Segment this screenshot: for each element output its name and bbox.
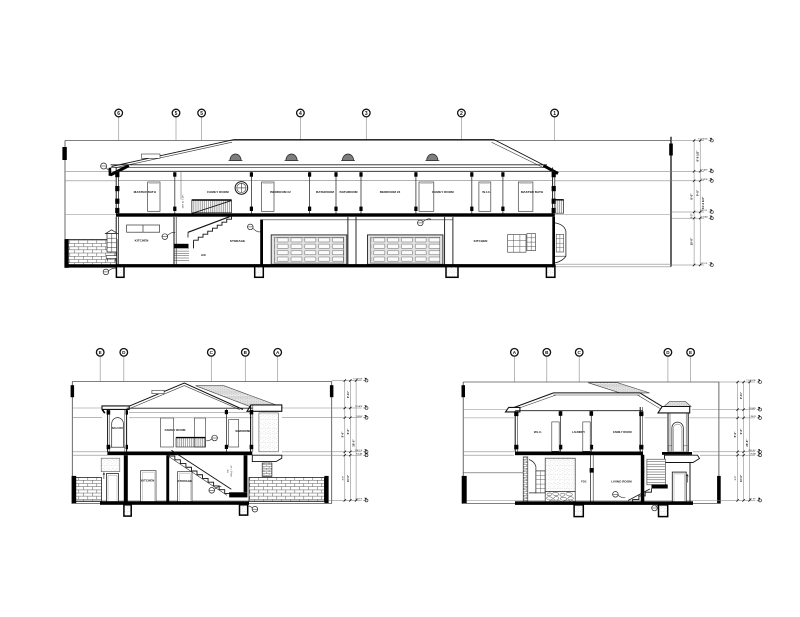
svg-text:MASTER BATH: MASTER BATH xyxy=(521,190,544,194)
svg-text:9'-0": 9'-0" xyxy=(739,428,743,435)
svg-text:FAMILY ROOM: FAMILY ROOM xyxy=(432,190,454,194)
svg-text:BEDROOM #3: BEDROOM #3 xyxy=(380,190,401,194)
svg-text:A/C: A/C xyxy=(201,253,207,257)
svg-text:LIVING ROOM: LIVING ROOM xyxy=(611,480,632,484)
svg-text:W.I.C.: W.I.C. xyxy=(482,190,491,194)
svg-text:KITCHEN: KITCHEN xyxy=(135,239,150,243)
svg-text:T.SLAB: T.SLAB xyxy=(749,452,756,455)
svg-text:5: 5 xyxy=(200,111,203,117)
svg-text:3'-0": 3'-0" xyxy=(342,476,344,481)
svg-text:BEDROOM #2: BEDROOM #2 xyxy=(270,190,291,194)
svg-text:3: 3 xyxy=(365,111,368,117)
svg-text:16R @ 7 1/2": 16R @ 7 1/2" xyxy=(231,465,233,477)
svg-text:9'-11": 9'-11" xyxy=(739,391,743,399)
svg-text:FAMILY ROOM: FAMILY ROOM xyxy=(207,190,229,194)
svg-text:FAMILY ROOM: FAMILY ROOM xyxy=(165,428,186,432)
svg-text:5: 5 xyxy=(175,111,178,117)
svg-text:T.SLAB: T.SLAB xyxy=(701,215,708,218)
svg-text:T.O.RIDGE: T.O.RIDGE xyxy=(746,380,756,382)
svg-text:T.SLAB: T.SLAB xyxy=(356,452,363,455)
svg-text:T.WDW: T.WDW xyxy=(356,416,363,418)
svg-text:10'-0": 10'-0" xyxy=(346,474,350,482)
svg-text:T.WDW: T.WDW xyxy=(749,416,756,418)
svg-text:34'-2 1/2": 34'-2 1/2" xyxy=(701,196,705,209)
svg-text:9'-0": 9'-0" xyxy=(696,189,700,196)
svg-text:4: 4 xyxy=(299,111,302,117)
svg-text:16R UP: 16R UP xyxy=(644,466,646,474)
svg-text:16 R @ 7 1/2": 16 R @ 7 1/2" xyxy=(183,194,185,208)
svg-text:WARDROBE: WARDROBE xyxy=(235,430,250,433)
svg-text:MASTER BATH: MASTER BATH xyxy=(134,190,157,194)
svg-text:T.PLATE: T.PLATE xyxy=(748,407,756,410)
svg-text:STORAGE: STORAGE xyxy=(230,239,245,243)
svg-text:26'-8": 26'-8" xyxy=(745,439,749,447)
svg-text:3'-0": 3'-0" xyxy=(735,476,737,481)
svg-text:T.WDW: T.WDW xyxy=(701,179,708,181)
svg-text:1ST F.F.: 1ST F.F. xyxy=(749,499,756,501)
svg-text:2: 2 xyxy=(460,111,463,117)
svg-text:1ST F.F.: 1ST F.F. xyxy=(355,499,362,501)
svg-text:6'-8 1/2": 6'-8 1/2" xyxy=(696,150,700,162)
svg-text:BATHROOM: BATHROOM xyxy=(340,190,358,194)
svg-text:T.O.RIDGE: T.O.RIDGE xyxy=(698,139,708,141)
svg-text:10'-0": 10'-0" xyxy=(690,237,694,245)
svg-text:T.PLATE: T.PLATE xyxy=(355,405,363,408)
svg-text:FOY.: FOY. xyxy=(581,480,587,484)
svg-text:9'-0": 9'-0" xyxy=(346,428,350,435)
svg-text:26'-5": 26'-5" xyxy=(352,439,356,447)
svg-text:BALCONY: BALCONY xyxy=(112,427,124,430)
svg-text:2ND F.F.: 2ND F.F. xyxy=(700,210,708,212)
svg-text:W.I.C.: W.I.C. xyxy=(534,430,542,434)
svg-text:KITCHEN: KITCHEN xyxy=(474,239,489,243)
svg-text:LAUNDRY: LAUNDRY xyxy=(572,430,585,434)
svg-text:2ND F.F.: 2ND F.F. xyxy=(355,450,363,452)
svg-text:1: 1 xyxy=(553,111,556,117)
svg-text:FAMILY ROOM: FAMILY ROOM xyxy=(613,430,632,434)
svg-text:8'-0": 8'-0" xyxy=(733,431,737,438)
svg-text:1ST F.F.: 1ST F.F. xyxy=(701,263,708,265)
svg-text:E: E xyxy=(689,350,692,355)
svg-text:E: E xyxy=(99,350,102,355)
svg-text:T.O.RIDGE: T.O.RIDGE xyxy=(353,379,363,381)
svg-text:T.PLATE: T.PLATE xyxy=(700,169,708,172)
svg-text:10'-0": 10'-0" xyxy=(739,474,743,482)
svg-text:2ND F.F.: 2ND F.F. xyxy=(749,450,757,452)
svg-text:8'-0": 8'-0" xyxy=(690,193,694,200)
svg-text:3'-0": 3'-0" xyxy=(692,214,694,219)
svg-text:BATHROOM: BATHROOM xyxy=(316,190,334,194)
svg-text:9'-11": 9'-11" xyxy=(346,390,350,398)
svg-text:KITCHEN: KITCHEN xyxy=(141,479,154,483)
svg-text:8'-6": 8'-6" xyxy=(340,431,344,438)
svg-text:STORAGE: STORAGE xyxy=(177,479,192,483)
svg-text:6: 6 xyxy=(117,111,120,117)
